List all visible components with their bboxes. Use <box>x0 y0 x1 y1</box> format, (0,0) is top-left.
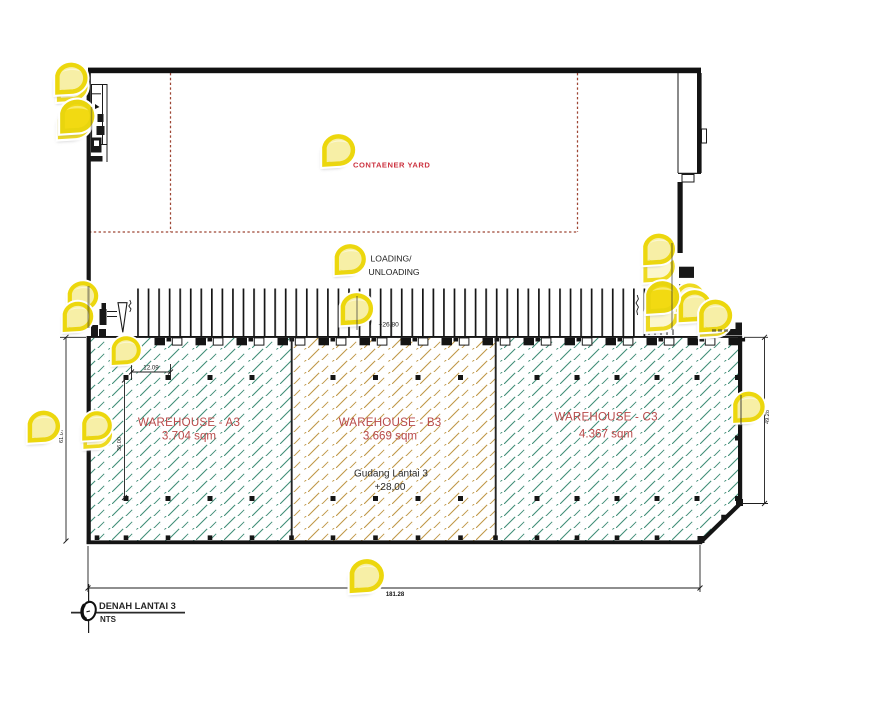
svg-text:36.00: 36.00 <box>117 437 123 451</box>
svg-text:LOADING/: LOADING/ <box>371 254 413 264</box>
svg-text:CONTAENER YARD: CONTAENER YARD <box>353 161 430 170</box>
svg-text:3.669 sqm: 3.669 sqm <box>363 430 417 443</box>
svg-text:WAREHOUSE - C3: WAREHOUSE - C3 <box>554 411 658 424</box>
svg-text:NTS: NTS <box>100 615 117 624</box>
svg-text:+28,00: +28,00 <box>375 482 406 493</box>
svg-text:+26,80: +26,80 <box>379 322 400 329</box>
svg-text:181.28: 181.28 <box>386 592 405 598</box>
svg-text:49.28: 49.28 <box>765 410 771 424</box>
svg-text:DENAH LANTAI 3: DENAH LANTAI 3 <box>99 601 176 611</box>
svg-text:4.367 sqm: 4.367 sqm <box>579 428 633 441</box>
svg-text:UNLOADING: UNLOADING <box>369 267 420 277</box>
svg-text:12.09: 12.09 <box>143 365 159 372</box>
svg-text:WAREHOUSE - B3: WAREHOUSE - B3 <box>339 416 442 429</box>
svg-text:WAREHOUSE - A3: WAREHOUSE - A3 <box>138 416 240 429</box>
svg-text:Gudang Lantai 3: Gudang Lantai 3 <box>354 469 428 480</box>
svg-text:3.704 sqm: 3.704 sqm <box>162 430 216 443</box>
